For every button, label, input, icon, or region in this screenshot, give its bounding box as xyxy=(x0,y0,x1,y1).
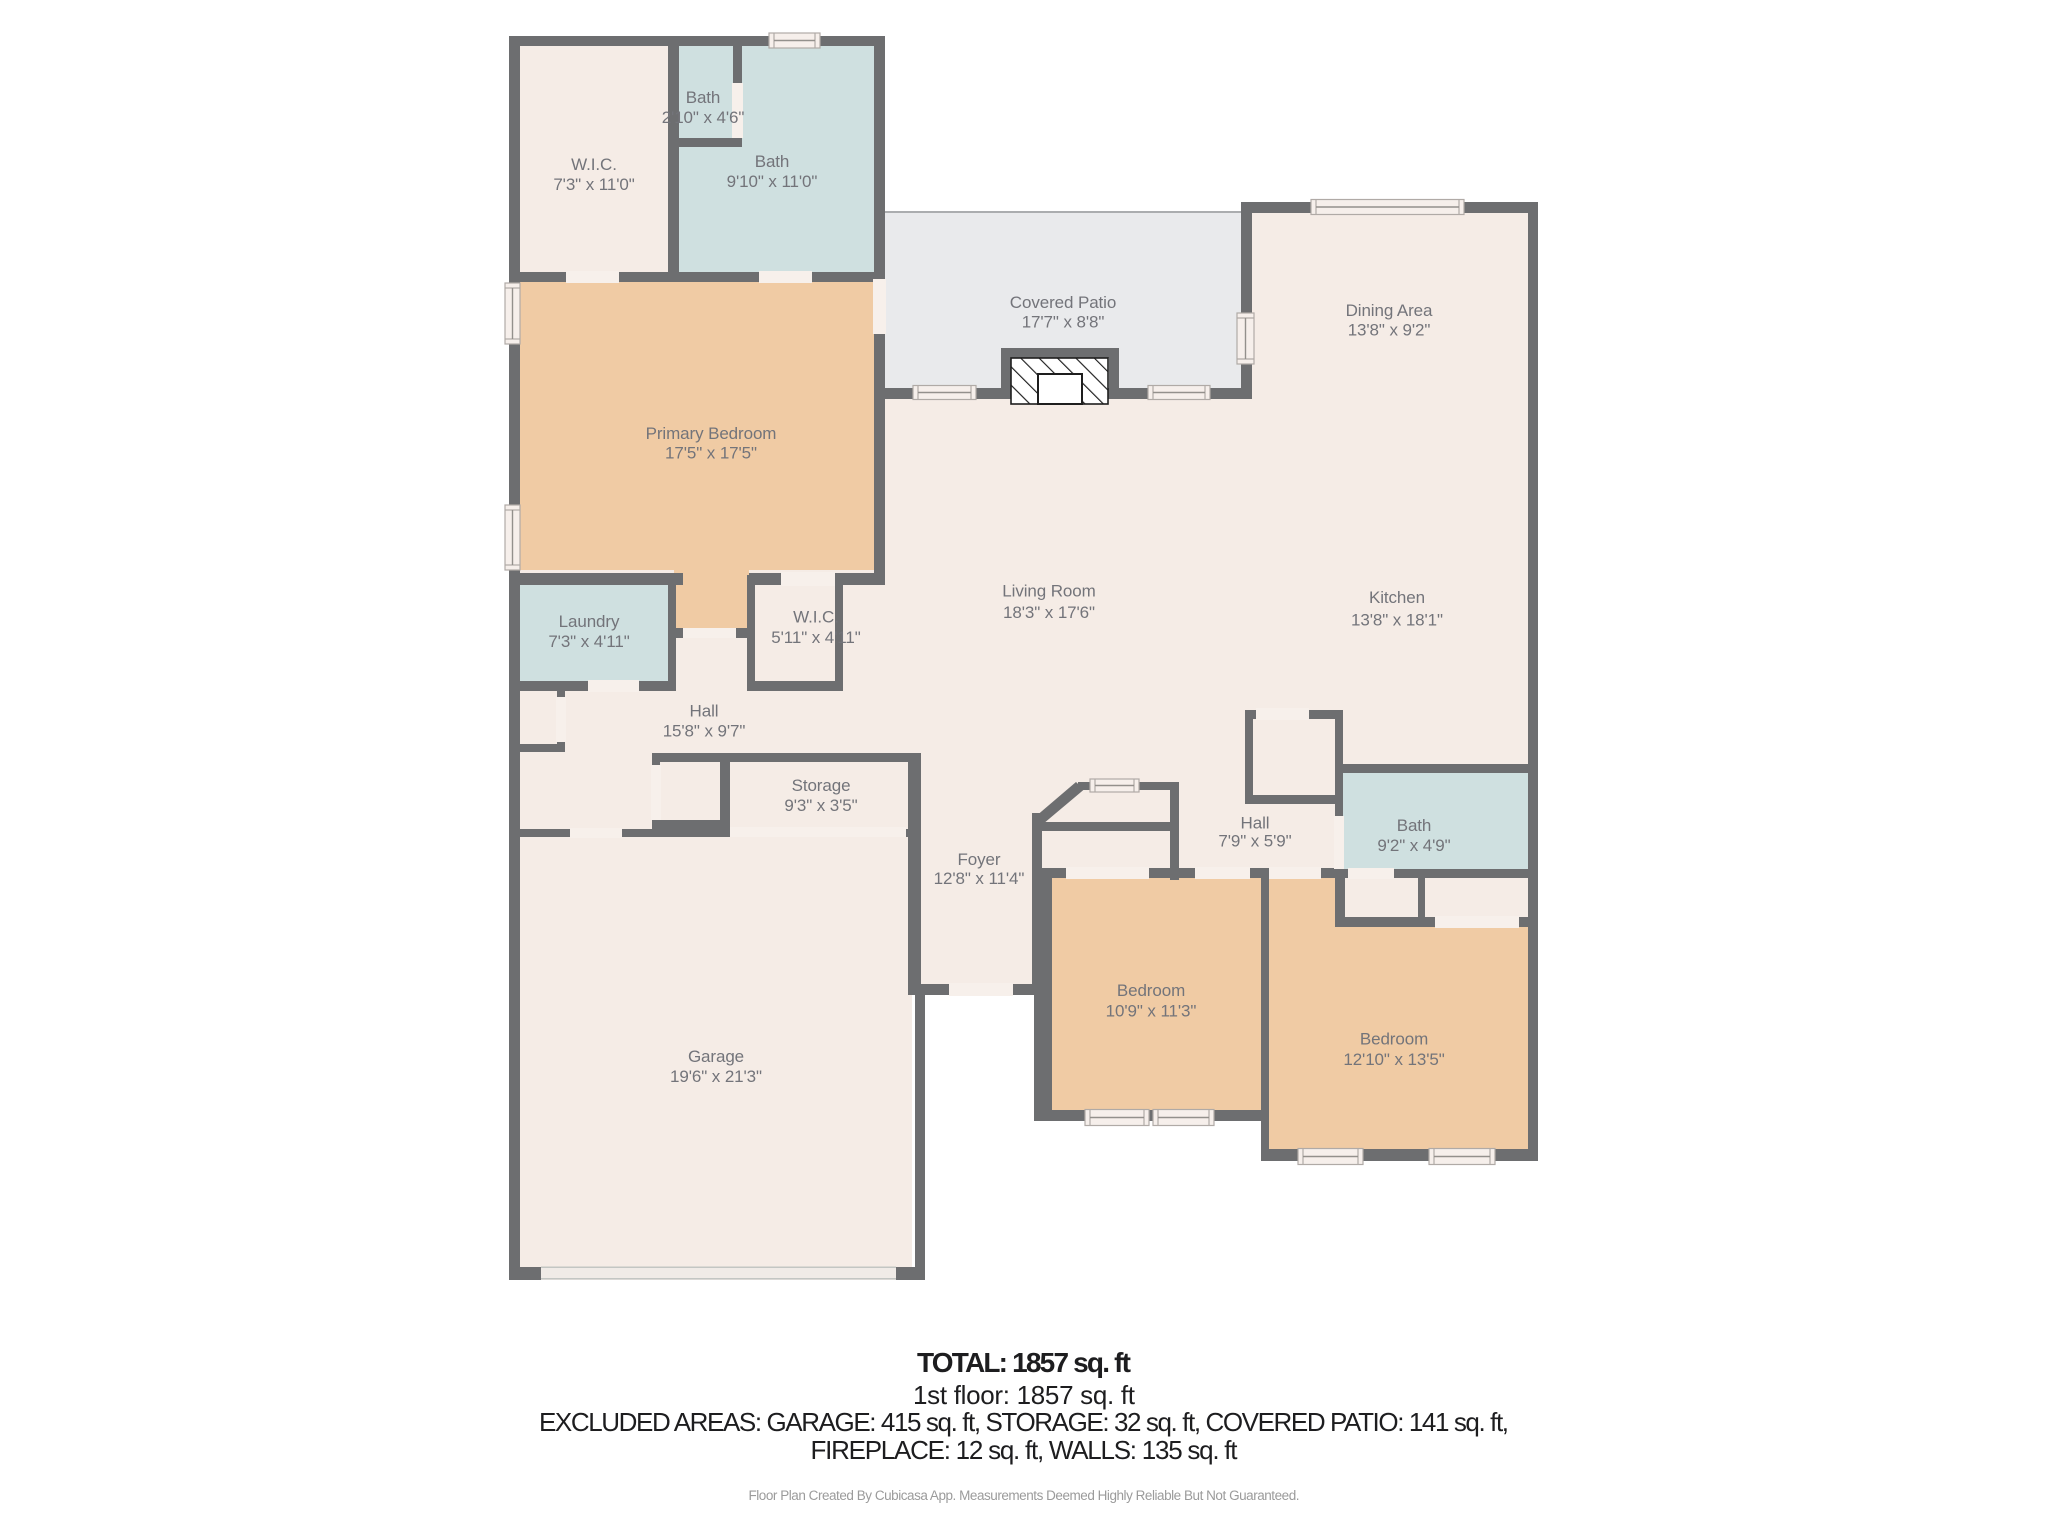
svg-text:Foyer: Foyer xyxy=(958,850,1001,869)
svg-text:Bedroom: Bedroom xyxy=(1117,981,1185,1000)
svg-text:Hall: Hall xyxy=(690,702,719,721)
svg-text:Living Room: Living Room xyxy=(1002,582,1095,601)
svg-text:Primary Bedroom: Primary Bedroom xyxy=(646,424,777,443)
svg-text:Dining Area: Dining Area xyxy=(1346,301,1433,320)
svg-text:Garage: Garage xyxy=(688,1047,744,1066)
svg-text:Covered Patio: Covered Patio xyxy=(1010,293,1116,312)
svg-text:2'10" x 4'6": 2'10" x 4'6" xyxy=(662,108,745,127)
svg-text:W.I.C.: W.I.C. xyxy=(793,608,839,627)
svg-text:7'9" x 5'9": 7'9" x 5'9" xyxy=(1218,832,1291,851)
svg-text:9'10" x 11'0": 9'10" x 11'0" xyxy=(727,172,818,191)
svg-text:Bedroom: Bedroom xyxy=(1360,1030,1428,1049)
svg-text:17'5" x 17'5": 17'5" x 17'5" xyxy=(665,444,757,463)
svg-text:Floor Plan Created By Cubicasa: Floor Plan Created By Cubicasa App. Meas… xyxy=(749,1488,1300,1503)
svg-text:7'3" x 11'0": 7'3" x 11'0" xyxy=(553,175,634,194)
svg-text:TOTAL: 1857 sq. ft: TOTAL: 1857 sq. ft xyxy=(917,1347,1131,1378)
svg-text:1st floor: 1857 sq. ft: 1st floor: 1857 sq. ft xyxy=(913,1380,1136,1410)
svg-text:Storage: Storage xyxy=(792,776,851,795)
svg-text:9'3" x 3'5": 9'3" x 3'5" xyxy=(784,796,857,815)
svg-text:19'6" x 21'3": 19'6" x 21'3" xyxy=(670,1067,762,1086)
svg-text:17'7" x 8'8": 17'7" x 8'8" xyxy=(1022,313,1105,332)
svg-text:Laundry: Laundry xyxy=(559,612,620,631)
svg-text:13'8" x 9'2": 13'8" x 9'2" xyxy=(1348,321,1431,340)
svg-text:Bath: Bath xyxy=(755,152,790,171)
svg-text:Bath: Bath xyxy=(686,88,721,107)
svg-text:7'3" x 4'11": 7'3" x 4'11" xyxy=(548,632,629,651)
svg-text:12'8" x 11'4": 12'8" x 11'4" xyxy=(934,869,1025,888)
svg-text:Hall: Hall xyxy=(1241,814,1270,833)
svg-text:Kitchen: Kitchen xyxy=(1369,588,1425,607)
svg-text:5'11" x 4'11": 5'11" x 4'11" xyxy=(771,628,860,647)
svg-text:Bath: Bath xyxy=(1397,816,1432,835)
svg-text:13'8" x 18'1": 13'8" x 18'1" xyxy=(1351,611,1443,630)
svg-text:W.I.C.: W.I.C. xyxy=(571,155,617,174)
svg-text:12'10" x 13'5": 12'10" x 13'5" xyxy=(1343,1050,1444,1069)
svg-text:EXCLUDED AREAS: GARAGE: 415 sq: EXCLUDED AREAS: GARAGE: 415 sq. ft, STOR… xyxy=(539,1407,1509,1437)
svg-text:10'9" x 11'3": 10'9" x 11'3" xyxy=(1106,1002,1197,1021)
svg-text:18'3" x 17'6": 18'3" x 17'6" xyxy=(1003,603,1095,622)
svg-text:9'2" x 4'9": 9'2" x 4'9" xyxy=(1377,836,1450,855)
svg-text:FIREPLACE: 12 sq. ft, WALLS: 1: FIREPLACE: 12 sq. ft, WALLS: 135 sq. ft xyxy=(811,1435,1239,1465)
svg-text:15'8" x 9'7": 15'8" x 9'7" xyxy=(663,722,746,741)
